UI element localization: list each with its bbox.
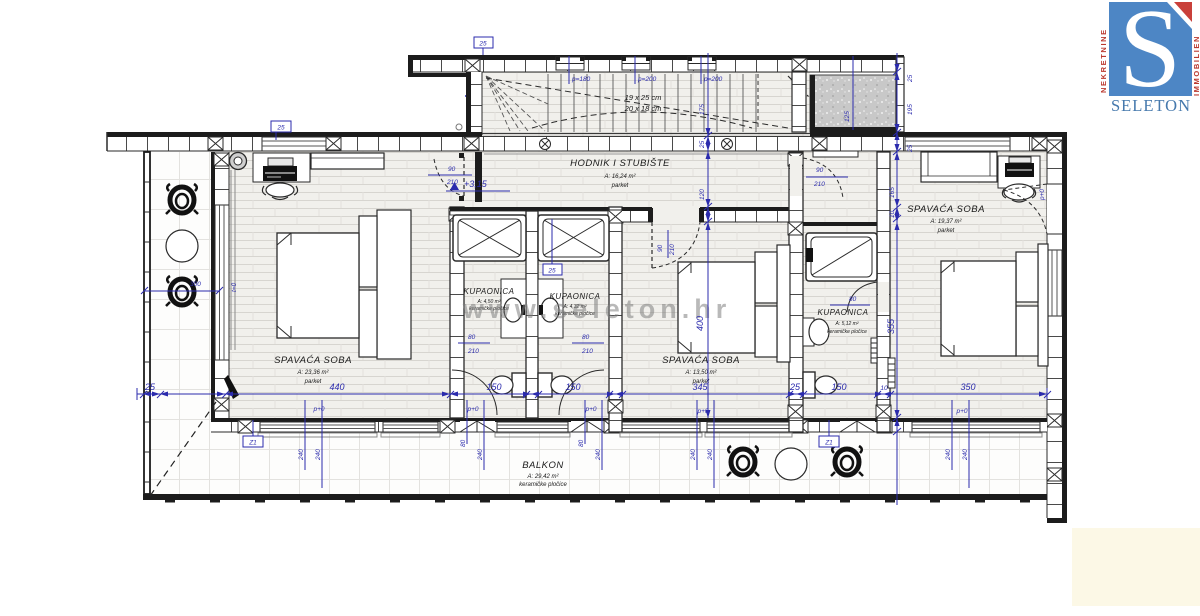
svg-text:A: 16,24 m²: A: 16,24 m² <box>603 174 636 180</box>
svg-text:A: 13,50 m²: A: 13,50 m² <box>684 370 717 376</box>
svg-text:25: 25 <box>699 140 706 149</box>
svg-text:25: 25 <box>907 144 914 153</box>
svg-text:90: 90 <box>448 166 456 173</box>
svg-text:parket: parket <box>937 228 955 234</box>
svg-text:KUPAONICA: KUPAONICA <box>817 308 868 317</box>
svg-text:A: 29,42 m²: A: 29,42 m² <box>526 474 559 480</box>
svg-text:Z1: Z1 <box>824 440 833 447</box>
svg-text:240: 240 <box>298 449 305 461</box>
svg-text:80: 80 <box>849 296 857 303</box>
svg-text:SPAVAĆA SOBA: SPAVAĆA SOBA <box>662 355 740 366</box>
svg-text:www.seleton.hr: www.seleton.hr <box>462 294 732 324</box>
svg-text:+3,15: +3,15 <box>464 179 488 189</box>
svg-text:355: 355 <box>886 318 896 334</box>
svg-text:240: 240 <box>707 449 714 461</box>
svg-text:keramičke pločice: keramičke pločice <box>519 482 567 488</box>
svg-text:p=200: p=200 <box>703 76 723 83</box>
svg-text:175: 175 <box>699 104 706 115</box>
svg-text:p=180: p=180 <box>571 76 591 83</box>
svg-text:p+0: p+0 <box>466 406 478 413</box>
svg-text:S: S <box>1119 0 1181 111</box>
svg-text:90: 90 <box>816 167 824 174</box>
svg-text:240: 240 <box>315 449 322 461</box>
svg-text:25: 25 <box>144 382 156 392</box>
svg-text:keramičke pločice: keramičke pločice <box>827 329 867 335</box>
svg-text:240: 240 <box>962 449 969 461</box>
svg-text:10: 10 <box>880 385 888 392</box>
svg-text:parket: parket <box>611 183 629 189</box>
svg-text:parket: parket <box>304 379 322 385</box>
svg-text:345: 345 <box>692 382 708 392</box>
svg-text:195: 195 <box>907 104 914 115</box>
svg-text:350: 350 <box>960 382 975 392</box>
svg-text:210: 210 <box>813 181 825 188</box>
svg-text:210: 210 <box>446 179 458 186</box>
svg-text:80: 80 <box>460 439 467 447</box>
svg-text:80: 80 <box>582 334 590 341</box>
svg-text:p+0: p+0 <box>1039 189 1046 201</box>
svg-text:25: 25 <box>907 74 914 83</box>
svg-text:Z1: Z1 <box>248 440 257 447</box>
svg-text:125: 125 <box>844 111 851 122</box>
svg-text:120: 120 <box>699 189 706 200</box>
svg-text:25: 25 <box>276 125 285 132</box>
svg-text:25: 25 <box>789 382 801 392</box>
svg-text:300: 300 <box>190 281 201 288</box>
svg-text:A: 23,36 m²: A: 23,36 m² <box>296 370 329 376</box>
svg-text:20 x 18 cm: 20 x 18 cm <box>624 104 662 113</box>
svg-text:165: 165 <box>889 187 896 198</box>
svg-text:p+0: p+0 <box>584 406 596 413</box>
svg-text:t=0: t=0 <box>231 282 238 292</box>
svg-text:SPAVAĆA SOBA: SPAVAĆA SOBA <box>907 204 985 215</box>
svg-text:SPAVAĆA SOBA: SPAVAĆA SOBA <box>274 355 352 366</box>
svg-text:440: 440 <box>329 382 344 392</box>
svg-text:150: 150 <box>565 382 580 392</box>
svg-text:210: 210 <box>581 348 593 355</box>
svg-text:BALKON: BALKON <box>522 460 564 471</box>
svg-text:19 x 25 cm: 19 x 25 cm <box>625 93 662 102</box>
svg-text:210: 210 <box>669 244 676 256</box>
svg-text:240: 240 <box>595 449 602 461</box>
svg-text:p=200: p=200 <box>637 76 657 83</box>
svg-text:SELETON: SELETON <box>1111 96 1191 115</box>
svg-text:150: 150 <box>486 382 501 392</box>
svg-text:25: 25 <box>547 268 556 275</box>
svg-text:IMMOBILIEN: IMMOBILIEN <box>1192 35 1200 96</box>
svg-text:p+0: p+0 <box>955 408 967 415</box>
svg-text:A: 19,37 m²: A: 19,37 m² <box>929 219 962 225</box>
svg-text:80: 80 <box>468 334 476 341</box>
svg-text:240: 240 <box>477 449 484 461</box>
svg-text:210: 210 <box>467 348 479 355</box>
svg-text:p+0: p+0 <box>312 406 324 413</box>
svg-text:240: 240 <box>945 449 952 461</box>
svg-text:90: 90 <box>657 244 664 252</box>
svg-text:A: 5,12 m²: A: 5,12 m² <box>834 321 858 327</box>
svg-text:150: 150 <box>831 382 846 392</box>
svg-text:240: 240 <box>690 449 697 461</box>
svg-text:NEKRETNINE: NEKRETNINE <box>1099 28 1108 93</box>
svg-text:HODNIK I STUBIŠTE: HODNIK I STUBIŠTE <box>570 158 670 169</box>
svg-text:80: 80 <box>578 439 585 447</box>
svg-text:25: 25 <box>478 41 487 48</box>
svg-text:400: 400 <box>695 316 705 331</box>
